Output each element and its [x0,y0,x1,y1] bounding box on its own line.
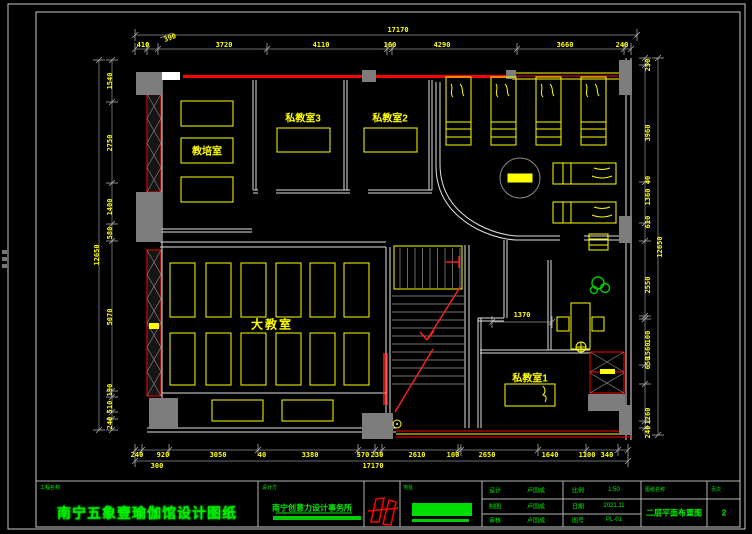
drawing-no-label: 图号 [572,516,584,525]
dim-label: 40 [258,451,266,459]
dim-label: 610 [644,216,652,229]
dimension-ticks [93,29,664,467]
scale-label: 比例 [572,486,584,495]
dim-label: 100 [644,331,652,344]
dim-label: 40 [644,176,652,184]
dim-label: 580 [106,227,114,240]
page-number: 2 [722,509,726,518]
staircase [384,246,464,428]
dim-label: 240 [131,451,144,459]
dim-label: 410 [137,41,150,49]
furniture [170,77,616,421]
reception-desk-top [508,174,532,182]
dim-label: 3050 [210,451,227,459]
designer-label: 设计方 [262,484,277,491]
dim-label: 240 [106,417,114,430]
stair-direction-arrow [384,256,460,412]
margin-marks [2,250,7,268]
design-label: 设计 [489,486,501,495]
project-name: 南宁五象壹瑜伽馆设计图纸 [57,503,237,523]
dim-label: 3720 [216,41,233,49]
scale-value: 1:50 [608,487,620,493]
dim-label: 4110 [313,41,330,49]
plant-icon [591,277,610,294]
room-label-private1: 私教室1 [512,370,548,385]
elevator-shaft [590,352,624,393]
dim-label: 2550 [644,277,652,294]
dim-label: 2650 [479,451,496,459]
room-label-private2: 私教室2 [372,110,408,125]
dim-label: 12650 [656,236,664,257]
dim-label: 1370 [514,311,531,319]
dim-label: 920 [157,451,170,459]
dim-label: 570 [357,451,370,459]
address-label: 地址 [403,484,413,491]
dim-label: 2610 [409,451,426,459]
date-label: 日期 [572,502,584,511]
design-value: 卢国成 [527,486,545,495]
dim-label: 17170 [387,26,408,34]
dim-label: 240 [644,426,652,439]
draft-label: 制图 [489,502,501,511]
review-value: 卢国成 [527,516,545,525]
dim-label: 3380 [302,451,319,459]
dim-label: 17170 [362,462,383,470]
address-highlight [412,503,472,516]
wall-notch [162,72,180,80]
room-label-private3: 私教室3 [285,110,321,125]
dim-label: 510 [106,401,114,414]
dim-label: 250 [644,59,652,72]
room-label-training: 教培室 [192,143,222,158]
dim-label: 240 [616,41,629,49]
dim-label: 1400 [106,199,114,216]
dim-label: 4290 [434,41,451,49]
designer-name: 南宁创意力设计事务所 [272,503,352,514]
sheet-name-label: 图纸名称 [645,486,665,493]
dim-label: 1540 [106,73,114,90]
dim-label: 300 [151,462,164,470]
page-label: 页次 [711,486,721,493]
drawing-no-value: PL-01 [606,517,622,523]
dim-label: 190 [106,384,114,397]
dim-label: 160 [384,41,397,49]
dim-label: 650 [644,357,652,370]
dim-label: 12650 [93,244,101,265]
project-name-label: 工程名称 [40,484,60,491]
dim-label: 3660 [557,41,574,49]
dim-label: 100 [447,451,460,459]
sheet-name: 二层平面布置图 [646,508,702,519]
dim-label: 230 [371,451,384,459]
dim-label: 5070 [106,309,114,326]
dim-label: 1360 [644,189,652,206]
dim-label: 1260 [644,408,652,425]
date-value: 2021.11 [603,503,624,509]
dim-label: 2750 [106,135,114,152]
cad-sheet: 教培室 私教室3 私教室2 大教室 私教室1 17170410390372041… [0,0,752,534]
dim-label: 1640 [542,451,559,459]
company-logo-icon [368,498,398,525]
dim-label: 3960 [644,125,652,142]
draft-value: 卢国成 [527,502,545,511]
room-label-big-classroom: 大教室 [251,316,293,333]
dim-label: 340 [601,451,614,459]
review-label: 审核 [489,516,501,525]
dim-label: 1100 [579,451,596,459]
